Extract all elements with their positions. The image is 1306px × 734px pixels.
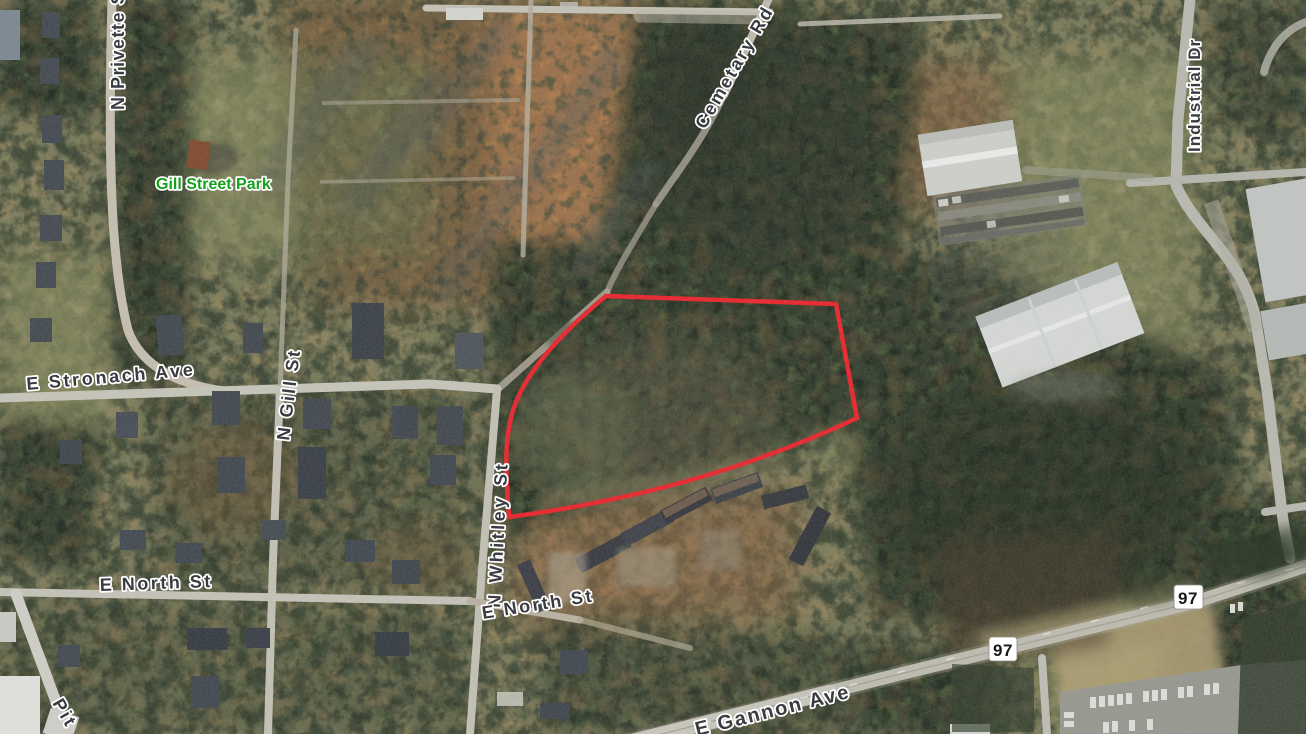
svg-text:97: 97 bbox=[1178, 589, 1198, 608]
svg-text:Industrial Dr: Industrial Dr bbox=[1185, 39, 1204, 152]
svg-text:97: 97 bbox=[993, 641, 1013, 660]
svg-text:E North St: E North St bbox=[99, 571, 213, 595]
svg-text:N Privette St: N Privette St bbox=[108, 0, 128, 110]
svg-text:Gill Street Park: Gill Street Park bbox=[156, 176, 271, 193]
